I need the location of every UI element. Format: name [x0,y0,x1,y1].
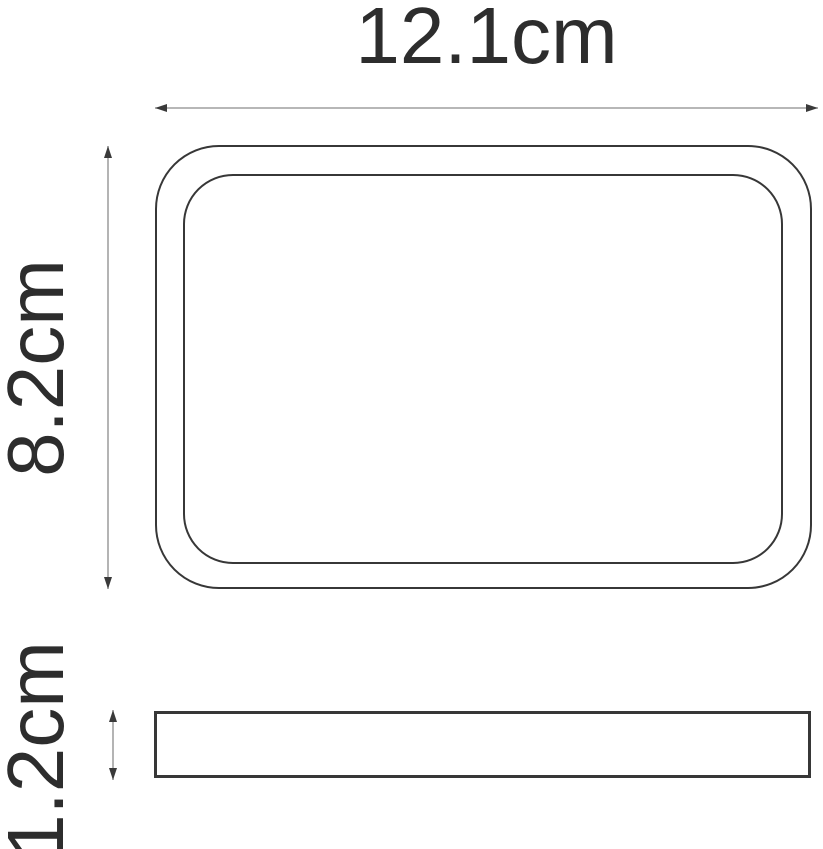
thickness-dimension-label: 1.2cm [0,641,76,849]
tray-top-view-inner-outline [183,174,783,564]
product-dimension-drawing: 12.1cm 8.2cm 1.2cm [0,0,823,849]
tray-side-view-profile [154,711,811,778]
height-dimension-label: 8.2cm [0,259,76,477]
